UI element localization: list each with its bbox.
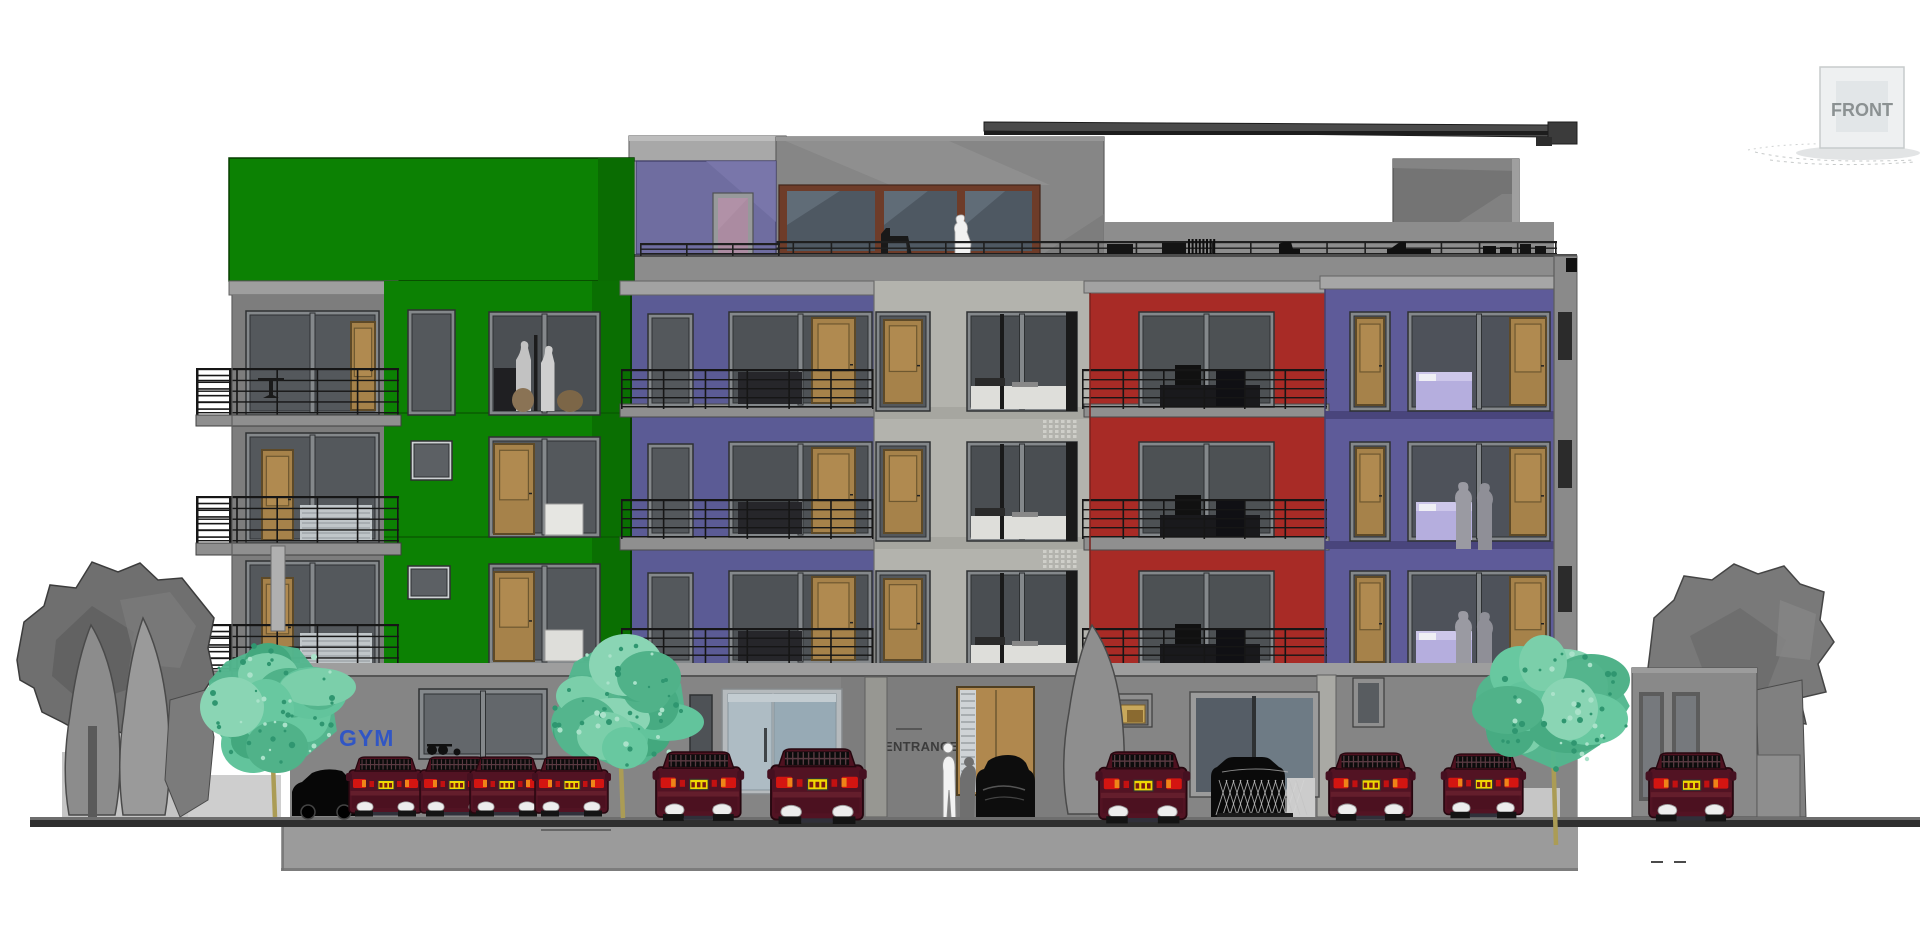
svg-text:FRONT: FRONT [1831, 100, 1893, 120]
svg-text:GYM: GYM [339, 725, 394, 751]
